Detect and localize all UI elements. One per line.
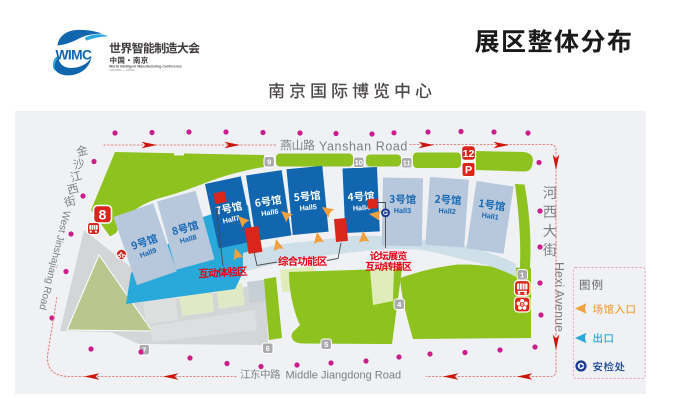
svg-text:Yanshan Road: Yanshan Road — [319, 140, 408, 154]
svg-text:12: 12 — [463, 148, 475, 160]
svg-text:8: 8 — [99, 207, 107, 223]
svg-text:Middle Jiangdong Road: Middle Jiangdong Road — [286, 370, 402, 382]
svg-text:9: 9 — [267, 158, 271, 167]
svg-text:11: 11 — [403, 159, 411, 168]
svg-text:1: 1 — [520, 271, 524, 280]
svg-text:6: 6 — [266, 344, 270, 353]
svg-text:10: 10 — [355, 158, 363, 167]
svg-text:Hall2: Hall2 — [438, 206, 456, 216]
svg-text:Hall3: Hall3 — [394, 206, 411, 215]
svg-text:Hexi Avenue: Hexi Avenue — [552, 262, 566, 332]
svg-text:NANJING — CHINA: NANJING — CHINA — [110, 68, 135, 72]
svg-text:P: P — [465, 165, 472, 177]
svg-text:5: 5 — [324, 340, 328, 349]
svg-text:Hall5: Hall5 — [299, 202, 317, 213]
svg-text:WIMC: WIMC — [56, 47, 93, 62]
